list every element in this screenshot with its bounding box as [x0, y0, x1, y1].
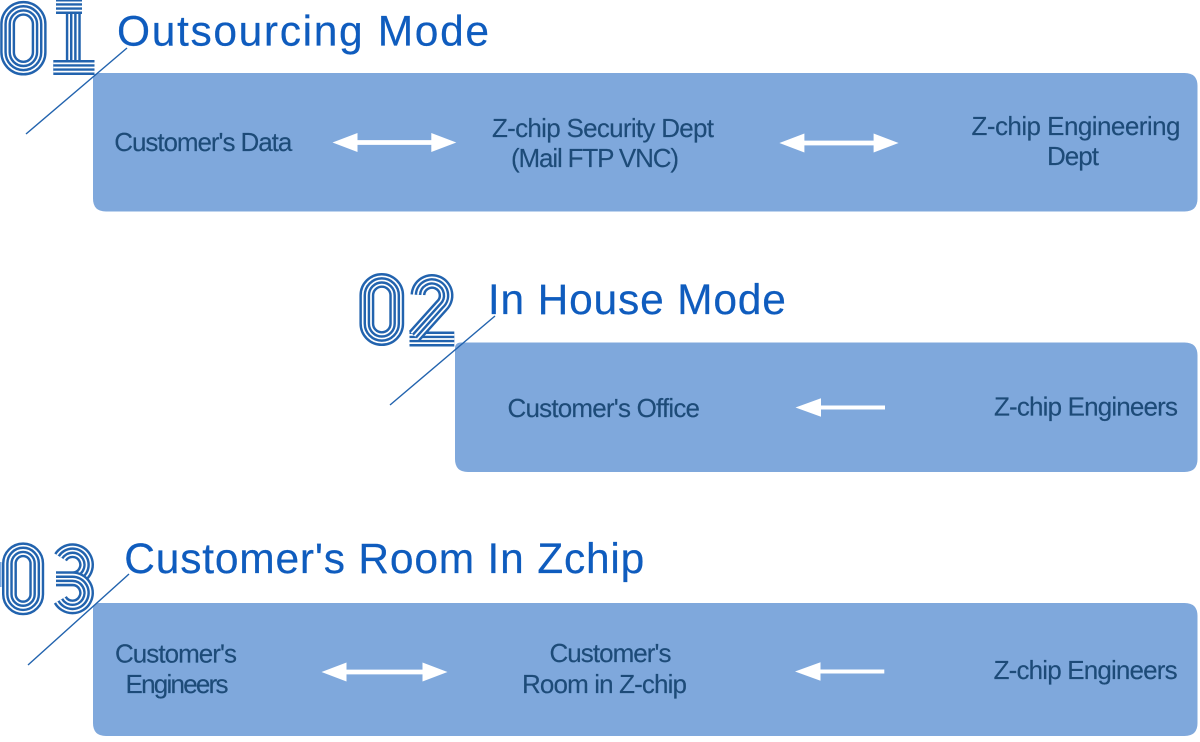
svg-text:(Mail FTP VNC): (Mail FTP VNC) — [511, 143, 679, 173]
svg-text:Z-chip Engineers: Z-chip Engineers — [994, 392, 1178, 422]
svg-text:Room in Z-chip: Room in Z-chip — [522, 669, 687, 699]
svg-text:Z-chip Engineering: Z-chip Engineering — [972, 111, 1181, 141]
svg-text:Customer's: Customer's — [550, 638, 672, 668]
svg-text:Z-chip Security Dept: Z-chip Security Dept — [492, 113, 715, 143]
svg-text:Z-chip Engineers: Z-chip Engineers — [994, 655, 1178, 685]
svg-text:Customer's: Customer's — [115, 639, 237, 669]
svg-text:Dept: Dept — [1047, 141, 1100, 171]
svg-text:Outsourcing Mode: Outsourcing Mode — [117, 8, 489, 55]
svg-text:Customer's Office: Customer's Office — [508, 393, 701, 423]
svg-text:In House Mode: In House Mode — [488, 277, 786, 324]
svg-text:Customer's Data: Customer's Data — [114, 127, 293, 157]
svg-text:Customer's Room In Zchip: Customer's Room In Zchip — [124, 536, 644, 583]
svg-text:Engineers: Engineers — [126, 669, 229, 699]
